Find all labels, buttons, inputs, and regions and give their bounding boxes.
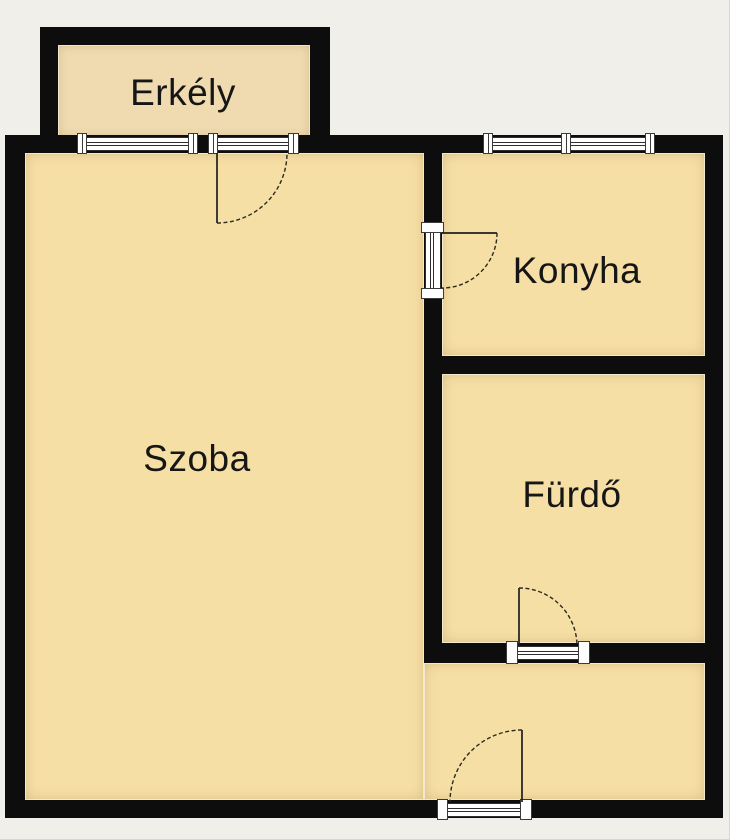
- balcony-window: [87, 137, 188, 151]
- entry-door-jamb-left: [437, 799, 448, 820]
- kitchen-window-cap-right: [645, 133, 655, 154]
- balcony-door-cap-right: [288, 133, 299, 154]
- wall-right: [705, 135, 723, 818]
- wall-left: [5, 135, 25, 818]
- wall-balcony-top: [40, 27, 330, 45]
- balcony-window-cap-left: [77, 133, 87, 154]
- floor-plan: Erkély Szoba Konyha Fürdő: [0, 0, 730, 840]
- balcony-door-glazing: [218, 137, 288, 151]
- balcony-window-cap-right: [188, 133, 198, 154]
- room-label-konyha: Konyha: [513, 250, 642, 292]
- kitchen-door-jamb-bottom: [421, 288, 444, 299]
- kitchen-door-threshold: [425, 233, 441, 288]
- bathroom-door-jamb-right: [578, 641, 590, 664]
- kitchen-window-mullion: [561, 133, 571, 154]
- bathroom-door-threshold: [518, 646, 578, 660]
- balcony-door-cap-left: [208, 133, 218, 154]
- entry-door-threshold: [448, 803, 520, 817]
- room-label-furdo: Fürdő: [522, 474, 621, 516]
- bathroom-door-jamb-left: [506, 641, 518, 664]
- wall-bottom: [5, 800, 723, 818]
- hallway-floor: [424, 663, 705, 800]
- entry-door-jamb-right: [520, 799, 532, 820]
- kitchen-window-cap-left: [483, 133, 493, 154]
- room-label-erkely: Erkély: [130, 72, 236, 114]
- wall-konyha-furdo-divider: [442, 356, 705, 374]
- kitchen-door-jamb-top: [421, 222, 444, 233]
- room-label-szoba: Szoba: [143, 438, 250, 480]
